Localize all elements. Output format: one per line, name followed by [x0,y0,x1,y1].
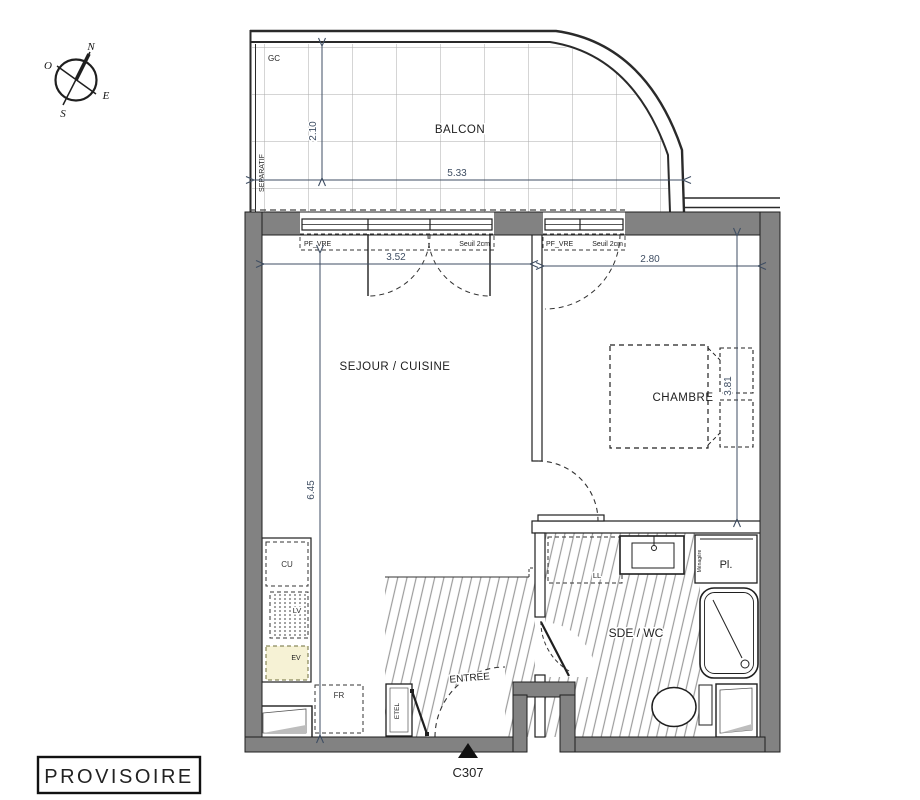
toilet [652,688,696,727]
wall-bathroom-left-upper [535,533,545,617]
bedroom-area: CHAMBRE [538,345,753,521]
dim-sejour-width: 3.52 [386,252,406,263]
etel-label: ETEL [394,702,401,719]
bed-corner-fold-top [708,348,720,360]
gc-label: GC [268,54,280,63]
unit-number-label: C307 [452,765,483,780]
closet-pl-label: Pl. [720,559,733,571]
toilet-cistern [699,685,712,725]
sink-outline [266,646,308,680]
compass-needle-north-half [76,54,89,80]
compass-rose-icon: N O E S [44,41,110,120]
bedroom-door-swing-arc [538,461,598,521]
wall-bottom-right [575,737,765,752]
bedroom-room-label: CHAMBRE [652,392,713,404]
dim-balcony-width: 5.33 [447,168,467,179]
dim-sejour-depth: 6.45 [306,480,317,500]
provisional-stamp-label: PROVISOIRE [44,766,193,788]
compass-north-label: N [86,41,95,53]
kitchen-fixtures: CU LV EV FR [258,538,363,738]
dim-chambre-width: 2.80 [640,254,660,265]
compass-east-label: E [102,90,110,102]
wall-sejour-chambre [532,234,542,461]
separatif-label: SEPARATIF [259,154,266,192]
dim-balcony-depth: 2.10 [308,121,319,141]
window-1-sill-label: Seuil 2cm [459,241,490,248]
compass-south-label: S [60,108,66,120]
sejour-room-label: SEJOUR / CUISINE [340,361,451,373]
fridge-label: FR [334,691,345,700]
bedroom-door-leaf [538,515,604,521]
shower-drain [741,660,749,668]
window-1-type-label: PF_VRE [304,241,332,248]
floor-plan-canvas: GC SEPARATIF BALCON 2.10 5.33 CU [0,0,920,800]
etel-door-hinge [410,689,414,693]
floor-plan-page: GC SEPARATIF BALCON 2.10 5.33 CU [0,0,920,800]
wall-left [245,212,262,752]
compass-west-label: O [44,60,52,72]
balcony-area: GC SEPARATIF BALCON 2.10 5.33 [250,30,780,212]
washing-machine-label: LL [593,571,601,580]
etel-door-stop [425,732,429,736]
cooker-label: CU [281,560,293,569]
bed-corner-fold-bottom [708,433,720,445]
entry-recess-right-jamb [560,695,575,752]
wall-chambre-bathroom [532,521,762,533]
wall-bottom-left [245,737,513,752]
closet-pl-side-label: Ménagère [697,550,703,573]
window-2-type-label: PF_VRE [546,241,574,248]
entry-recess-left-jamb [513,695,527,752]
wall-right [760,212,780,752]
bathroom-room-label: SDE / WC [609,626,664,640]
balcony-room-label: BALCON [435,124,485,136]
dim-chambre-depth: 3.81 [723,376,734,396]
washbasin-bowl [632,543,674,568]
windows: PF_VRE Seuil 2cm PF_VRE Seuil 2cm [300,213,625,310]
dishwasher-label: LV [293,606,302,615]
sink-label: EV [291,655,301,662]
window-1-left-swing-arc [368,234,430,296]
